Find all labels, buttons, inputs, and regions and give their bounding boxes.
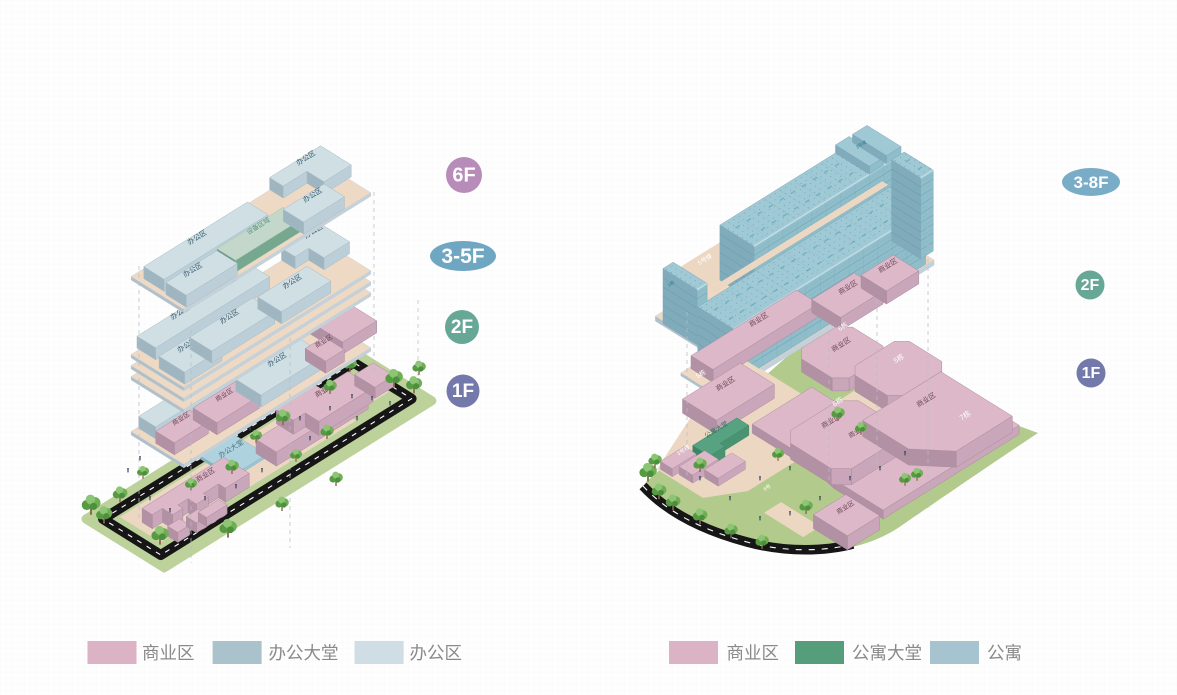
- svg-text:商业区: 商业区: [727, 643, 780, 663]
- svg-text:2F: 2F: [1081, 277, 1100, 294]
- svg-text:商业区: 商业区: [142, 643, 195, 663]
- svg-text:6F: 6F: [452, 165, 475, 187]
- svg-text:办公大堂: 办公大堂: [269, 643, 339, 663]
- svg-text:公寓: 公寓: [987, 643, 1022, 663]
- svg-text:1F: 1F: [452, 381, 474, 402]
- svg-text:3-8F: 3-8F: [1074, 173, 1109, 192]
- svg-text:办公区: 办公区: [410, 643, 463, 663]
- svg-text:2F: 2F: [451, 317, 473, 338]
- svg-text:公寓大堂: 公寓大堂: [852, 643, 922, 663]
- svg-text:3-5F: 3-5F: [441, 245, 484, 268]
- svg-text:1F: 1F: [1082, 365, 1101, 382]
